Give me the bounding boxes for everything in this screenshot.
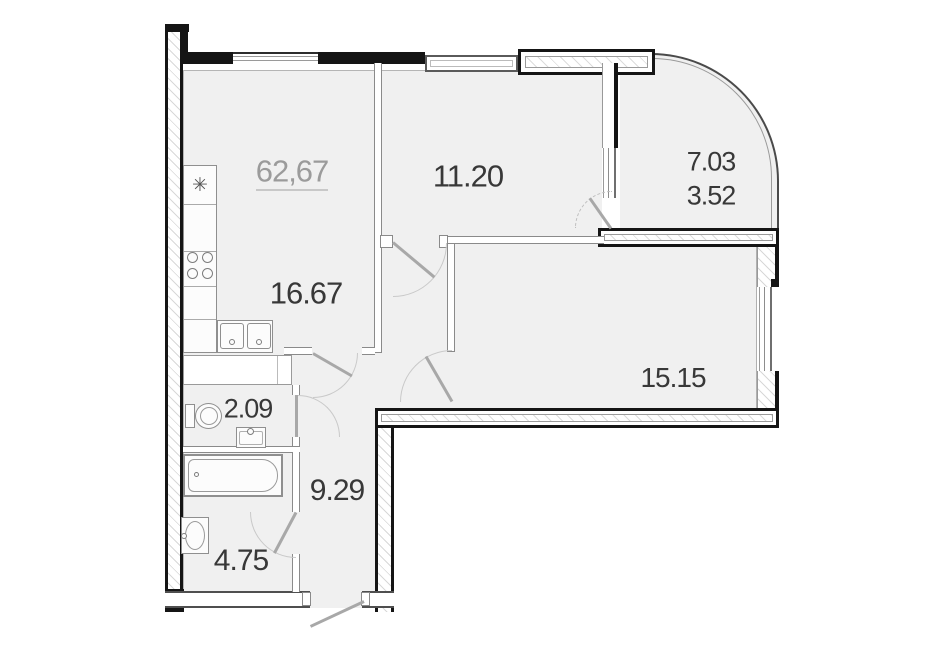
floor-plan: ✳ 62,67 11.20 7.03 3.52 16.67 15.15 2.09… <box>0 0 950 650</box>
entrance-jamb-left <box>302 592 311 606</box>
wall-living-room-south <box>447 236 604 244</box>
stove-burner <box>187 252 198 263</box>
total-area-underline <box>256 189 328 191</box>
bathtub-drain <box>194 472 199 477</box>
room-label-wc: 2.09 <box>224 396 273 423</box>
window-top-1 <box>233 52 318 64</box>
stove-burner <box>202 268 213 279</box>
wall-wc-right-top <box>292 385 300 395</box>
wc-door-leaf <box>295 395 298 437</box>
wall-balcony-bottom <box>598 228 779 247</box>
toilet-tank <box>185 404 195 428</box>
wall-balcony-back <box>518 49 655 75</box>
wall-kitchen-hall-right <box>362 347 375 355</box>
stove-symbol-icon: ✳ <box>186 174 214 198</box>
wall-balcony-partition <box>602 63 618 148</box>
window-right <box>759 287 773 371</box>
wall-wing-bottom <box>375 408 779 428</box>
bath-basin-faucet <box>181 533 187 539</box>
wall-corridor-right <box>375 408 394 612</box>
wall-living-divider <box>374 63 382 353</box>
room-label-balcony-full: 7.03 <box>687 149 736 176</box>
duct-block <box>183 355 292 385</box>
bath-basin-inner <box>185 521 205 550</box>
wall-kitchen-hall-left <box>284 347 312 355</box>
kitchen-sink-right <box>247 323 271 349</box>
room-label-living: 11.20 <box>433 161 503 192</box>
living-door-jamb-left <box>380 235 393 248</box>
window-top-2 <box>425 55 518 72</box>
room-label-hallway: 9.29 <box>310 476 364 506</box>
stove-burner <box>187 268 198 279</box>
room-label-total-area: 62,67 <box>256 156 329 187</box>
wall-hall-bedroom <box>447 244 455 352</box>
wall-top-pier-1 <box>181 52 233 64</box>
wall-right-pier-bottom <box>757 371 779 408</box>
wc-basin-faucet <box>247 428 254 435</box>
kitchen-faucet <box>229 339 235 345</box>
room-label-bathroom: 4.75 <box>214 546 268 576</box>
toilet-bowl-inner <box>200 407 218 425</box>
window-right-cap-top <box>771 279 779 287</box>
kitchen-faucet <box>256 339 262 345</box>
room-label-kitchen: 16.67 <box>270 278 343 309</box>
kitchen-sink-left <box>220 323 244 349</box>
wall-top-pier-2 <box>318 52 425 64</box>
bathtub-inner <box>188 459 278 492</box>
wall-bath-right-top <box>292 452 300 512</box>
stove-burner <box>202 252 213 263</box>
wall-bath-right-bottom <box>292 554 300 592</box>
room-label-bedroom: 15.15 <box>640 364 705 392</box>
room-label-balcony-reduced: 3.52 <box>687 183 736 210</box>
